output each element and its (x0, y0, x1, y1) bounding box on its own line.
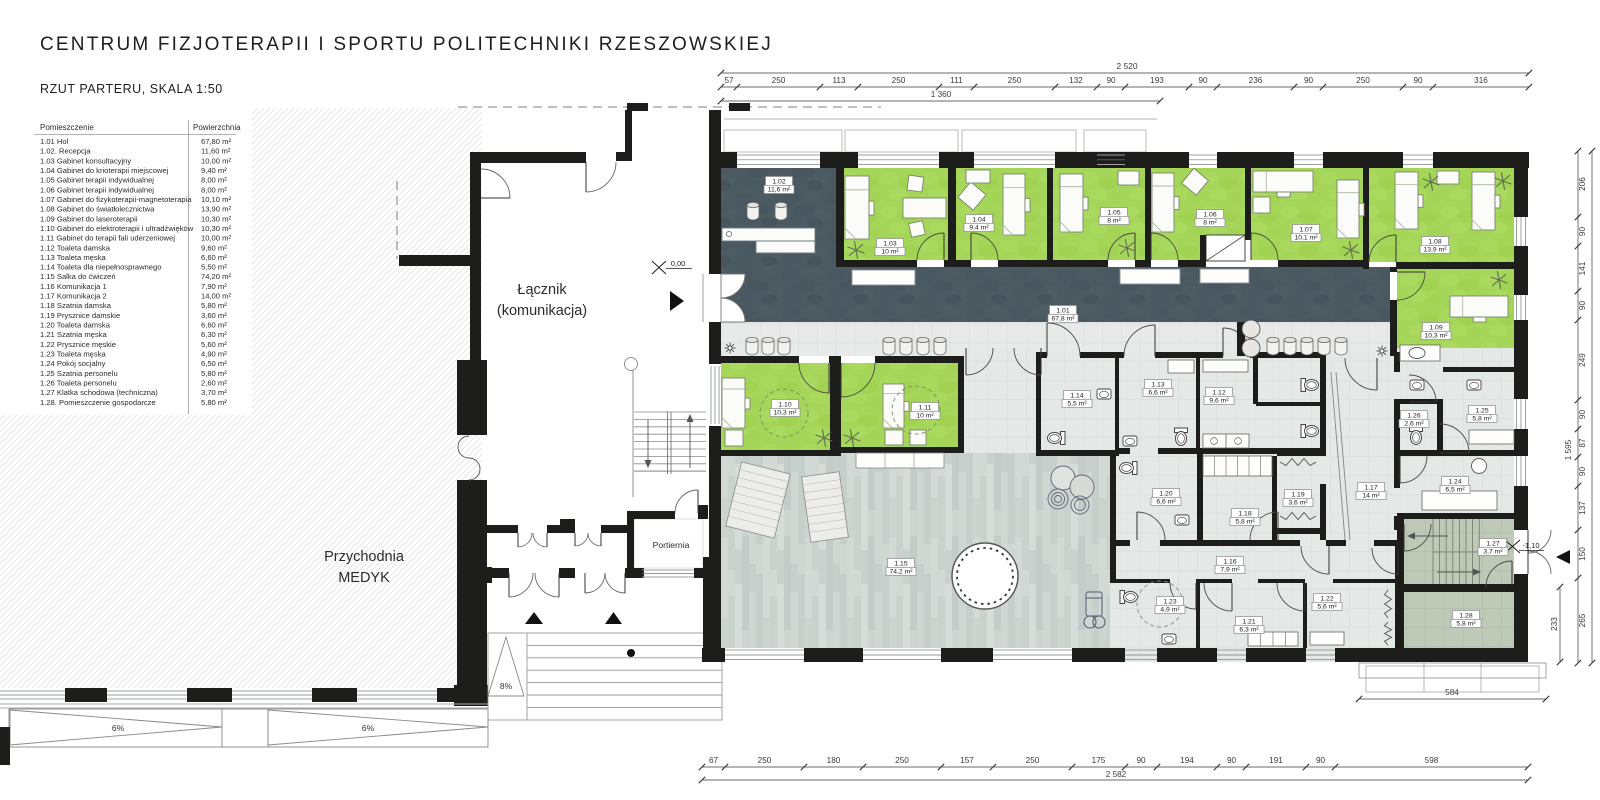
svg-text:7,90 m²: 7,90 m² (201, 282, 227, 291)
svg-text:90: 90 (1198, 76, 1208, 85)
svg-text:1.19 Prysznice damskie: 1.19 Prysznice damskie (40, 311, 120, 320)
svg-text:1.12: 1.12 (1212, 390, 1225, 397)
svg-text:5,8 m²: 5,8 m² (1456, 621, 1476, 628)
svg-text:157: 157 (960, 756, 974, 765)
svg-text:1.05: 1.05 (1107, 210, 1120, 217)
svg-text:90: 90 (1578, 301, 1587, 311)
svg-text:67,8 m²: 67,8 m² (1051, 316, 1075, 323)
svg-text:1.23 Toaleta męska: 1.23 Toaleta męska (40, 350, 106, 359)
svg-text:10,10 m²: 10,10 m² (201, 195, 231, 204)
svg-text:Pomieszczenie: Pomieszczenie (40, 123, 94, 132)
svg-text:1.27 Klatka schodowa (technicz: 1.27 Klatka schodowa (techniczna) (40, 388, 158, 397)
svg-text:265: 265 (1578, 613, 1587, 627)
svg-text:1.25 Szatnia personelu: 1.25 Szatnia personelu (40, 369, 118, 378)
svg-text:MEDYK: MEDYK (338, 570, 390, 586)
svg-text:1.15: 1.15 (894, 561, 907, 568)
svg-text:10,30 m²: 10,30 m² (201, 224, 231, 233)
svg-text:6,6 m²: 6,6 m² (1156, 499, 1176, 506)
svg-text:1.13 Toaleta męska: 1.13 Toaleta męska (40, 253, 106, 262)
svg-text:6,60 m²: 6,60 m² (201, 321, 227, 330)
svg-text:1 360: 1 360 (931, 90, 952, 99)
svg-text:3,60 m²: 3,60 m² (201, 311, 227, 320)
svg-text:10,30 m²: 10,30 m² (201, 214, 231, 223)
svg-text:5,80 m²: 5,80 m² (201, 301, 227, 310)
svg-text:11,60 m²: 11,60 m² (201, 147, 231, 156)
svg-text:9,40 m²: 9,40 m² (201, 166, 227, 175)
svg-text:90: 90 (1316, 756, 1326, 765)
svg-text:316: 316 (1474, 76, 1488, 85)
svg-text:1.10: 1.10 (778, 402, 791, 409)
svg-text:10,1 m²: 10,1 m² (1294, 235, 1318, 242)
svg-text:10 m²: 10 m² (881, 249, 899, 256)
svg-text:13,9 m²: 13,9 m² (1423, 247, 1447, 254)
svg-text:6%: 6% (362, 723, 375, 733)
svg-text:5,50 m²: 5,50 m² (201, 263, 227, 272)
svg-text:1.07 Gabinet do fizykoterapii-: 1.07 Gabinet do fizykoterapii-magnetoter… (40, 195, 192, 204)
svg-text:67: 67 (709, 756, 719, 765)
svg-text:1.26 Toaleta personelu: 1.26 Toaleta personelu (40, 379, 117, 388)
svg-text:10,3 m²: 10,3 m² (773, 410, 797, 417)
svg-text:3,70 m²: 3,70 m² (201, 388, 227, 397)
svg-text:5,8 m²: 5,8 m² (1235, 519, 1255, 526)
svg-text:5,80 m²: 5,80 m² (201, 369, 227, 378)
svg-text:1.05 Gabinet terapii indywidua: 1.05 Gabinet terapii indywidualnej (40, 176, 154, 185)
svg-text:1.11: 1.11 (919, 405, 932, 412)
svg-text:14,00 m²: 14,00 m² (201, 292, 231, 301)
svg-text:1.17 Komunikacja 2: 1.17 Komunikacja 2 (40, 292, 107, 301)
svg-text:8 m²: 8 m² (1203, 220, 1217, 227)
svg-text:1.01: 1.01 (1056, 308, 1069, 315)
svg-text:1.16 Komunikacja 1: 1.16 Komunikacja 1 (40, 282, 107, 291)
svg-text:1.16: 1.16 (1223, 559, 1236, 566)
svg-text:8,00 m²: 8,00 m² (201, 176, 227, 185)
svg-text:1.08 Gabinet do światłolecznic: 1.08 Gabinet do światłolecznictwa (40, 205, 155, 214)
svg-text:1.01 Hol: 1.01 Hol (40, 137, 69, 146)
svg-text:5,80 m²: 5,80 m² (201, 398, 227, 407)
svg-text:250: 250 (892, 76, 906, 85)
svg-text:1.22 Prysznice męskie: 1.22 Prysznice męskie (40, 340, 116, 349)
svg-text:141: 141 (1578, 261, 1587, 275)
svg-text:250: 250 (895, 756, 909, 765)
svg-text:250: 250 (1008, 76, 1022, 85)
svg-text:1.02: 1.02 (772, 179, 785, 186)
svg-text:1.15 Salka do ćwiczeń: 1.15 Salka do ćwiczeń (40, 272, 116, 281)
svg-text:4,9 m²: 4,9 m² (1160, 607, 1180, 614)
svg-text:1.17: 1.17 (1364, 485, 1377, 492)
svg-text:6,60 m²: 6,60 m² (201, 253, 227, 262)
svg-text:1.09 Gabinet do laseroterapii: 1.09 Gabinet do laseroterapii (40, 214, 138, 223)
svg-text:2,6 m²: 2,6 m² (1404, 421, 1424, 428)
svg-text:10,3 m²: 10,3 m² (1424, 333, 1448, 340)
svg-text:1.23: 1.23 (1163, 599, 1176, 606)
svg-text:6,5 m²: 6,5 m² (1445, 487, 1465, 494)
svg-text:14 m²: 14 m² (1362, 493, 1380, 500)
svg-text:1.28. Pomieszczenie gospodarcz: 1.28. Pomieszczenie gospodarcze (40, 398, 156, 407)
svg-text:9,4 m²: 9,4 m² (969, 225, 989, 232)
svg-text:1.10 Gabinet do elektroterapii: 1.10 Gabinet do elektroterapii i ultradź… (40, 224, 194, 233)
svg-text:194: 194 (1180, 756, 1194, 765)
svg-text:191: 191 (1269, 756, 1283, 765)
svg-text:10,00 m²: 10,00 m² (201, 234, 231, 243)
svg-text:1 595: 1 595 (1564, 439, 1573, 460)
svg-text:598: 598 (1425, 756, 1439, 765)
svg-text:3,6 m²: 3,6 m² (1288, 500, 1308, 507)
svg-text:175: 175 (1092, 756, 1106, 765)
svg-text:10,00 m²: 10,00 m² (201, 156, 231, 165)
svg-text:1.12 Toaleta damska: 1.12 Toaleta damska (40, 243, 111, 252)
svg-text:7,9 m²: 7,9 m² (1220, 567, 1240, 574)
svg-text:1.02. Recepcja: 1.02. Recepcja (40, 147, 91, 156)
svg-text:1.13: 1.13 (1151, 382, 1164, 389)
svg-text:2,60 m²: 2,60 m² (201, 379, 227, 388)
svg-text:(komunikacja): (komunikacja) (497, 303, 587, 319)
svg-text:8%: 8% (500, 681, 513, 691)
svg-text:87: 87 (1578, 438, 1587, 448)
svg-text:1.19: 1.19 (1291, 492, 1304, 499)
svg-text:90: 90 (1227, 756, 1237, 765)
svg-text:206: 206 (1578, 177, 1587, 191)
svg-text:1.14 Toaleta dla niepełnospraw: 1.14 Toaleta dla niepełnosprawnego (40, 263, 161, 272)
svg-text:250: 250 (772, 76, 786, 85)
svg-text:1.27: 1.27 (1486, 541, 1499, 548)
svg-text:6,6 m²: 6,6 m² (1148, 390, 1168, 397)
svg-text:90: 90 (1578, 410, 1587, 420)
svg-text:Powierzchnia: Powierzchnia (193, 123, 241, 132)
svg-text:Przychodnia: Przychodnia (324, 549, 405, 565)
svg-text:0,00: 0,00 (671, 259, 686, 268)
svg-text:Portiernia: Portiernia (653, 540, 690, 550)
svg-text:9,6 m²: 9,6 m² (1209, 398, 1229, 405)
svg-text:1.24 Pokój socjalny: 1.24 Pokój socjalny (40, 359, 106, 368)
svg-text:-1,10: -1,10 (1522, 541, 1539, 550)
svg-text:236: 236 (1249, 76, 1263, 85)
svg-text:6%: 6% (112, 723, 125, 733)
svg-text:6,30 m²: 6,30 m² (201, 330, 227, 339)
svg-text:250: 250 (758, 756, 772, 765)
svg-text:74,20 m²: 74,20 m² (201, 272, 231, 281)
svg-text:113: 113 (832, 76, 845, 85)
svg-text:2 582: 2 582 (1106, 770, 1127, 779)
svg-text:6,3 m²: 6,3 m² (1239, 627, 1259, 634)
svg-text:249: 249 (1578, 353, 1587, 367)
svg-text:1.09: 1.09 (1429, 325, 1442, 332)
svg-text:5,6 m²: 5,6 m² (1317, 604, 1337, 611)
svg-text:137: 137 (1578, 501, 1587, 515)
svg-text:1.18: 1.18 (1238, 511, 1251, 518)
svg-text:250: 250 (1026, 756, 1040, 765)
svg-text:150: 150 (1578, 547, 1587, 561)
svg-text:5,60 m²: 5,60 m² (201, 340, 227, 349)
svg-text:RZUT PARTERU, SKALA 1:50: RZUT PARTERU, SKALA 1:50 (40, 82, 223, 96)
svg-text:1.21 Szatnia męska: 1.21 Szatnia męska (40, 330, 107, 339)
svg-text:13,90 m²: 13,90 m² (201, 205, 231, 214)
svg-text:10 m²: 10 m² (916, 413, 934, 420)
svg-text:90: 90 (1578, 227, 1587, 237)
svg-text:90: 90 (1578, 467, 1587, 477)
svg-text:1.21: 1.21 (1242, 619, 1255, 626)
svg-text:1.25: 1.25 (1475, 408, 1488, 415)
svg-text:Łącznik: Łącznik (517, 282, 567, 298)
svg-text:1.06: 1.06 (1203, 212, 1216, 219)
svg-text:8,00 m²: 8,00 m² (201, 185, 227, 194)
svg-text:193: 193 (1150, 76, 1164, 85)
svg-text:11,6 m²: 11,6 m² (768, 187, 791, 194)
svg-text:1.04 Gabinet do krioterapii mi: 1.04 Gabinet do krioterapii miejscowej (40, 166, 169, 175)
svg-text:1.07: 1.07 (1299, 227, 1312, 234)
svg-text:1.11 Gabinet do terapii fali u: 1.11 Gabinet do terapii fali uderzeniowe… (40, 234, 175, 243)
svg-text:180: 180 (827, 756, 841, 765)
svg-text:1.24: 1.24 (1448, 479, 1461, 486)
svg-text:1.22: 1.22 (1320, 596, 1333, 603)
svg-text:1.20: 1.20 (1159, 491, 1172, 498)
svg-text:5,8 m²: 5,8 m² (1472, 416, 1492, 423)
svg-text:1.20 Toaleta damska: 1.20 Toaleta damska (40, 321, 111, 330)
svg-text:90: 90 (1304, 76, 1314, 85)
svg-text:90: 90 (1106, 76, 1116, 85)
svg-text:1.08: 1.08 (1428, 239, 1441, 246)
svg-text:90: 90 (1136, 756, 1146, 765)
svg-text:1.04: 1.04 (972, 217, 985, 224)
svg-text:584: 584 (1445, 688, 1459, 697)
svg-text:1.26: 1.26 (1407, 413, 1420, 420)
svg-text:3,7 m²: 3,7 m² (1483, 549, 1503, 556)
svg-text:233: 233 (1550, 617, 1559, 631)
svg-text:4,90 m²: 4,90 m² (201, 350, 227, 359)
svg-text:67,80 m²: 67,80 m² (201, 137, 231, 146)
svg-text:1.14: 1.14 (1070, 393, 1083, 400)
svg-text:5,5 m²: 5,5 m² (1067, 401, 1087, 408)
svg-text:132: 132 (1069, 76, 1083, 85)
svg-text:2 520: 2 520 (1116, 61, 1138, 71)
svg-text:8 m²: 8 m² (1107, 218, 1121, 225)
svg-text:9,60 m²: 9,60 m² (201, 243, 227, 252)
svg-text:111: 111 (950, 76, 963, 85)
svg-text:1.28: 1.28 (1459, 613, 1472, 620)
svg-text:57: 57 (724, 76, 734, 85)
svg-text:1.03 Gabinet konsultacyjny: 1.03 Gabinet konsultacyjny (40, 156, 131, 165)
svg-text:CENTRUM FIZJOTERAPII I SPORTU: CENTRUM FIZJOTERAPII I SPORTU POLITECHNI… (40, 34, 773, 55)
svg-text:1.18 Szatnia damska: 1.18 Szatnia damska (40, 301, 112, 310)
svg-text:90: 90 (1413, 76, 1423, 85)
svg-text:74,2 m²: 74,2 m² (889, 569, 913, 576)
svg-text:1.06 Gabinet terapii indywidua: 1.06 Gabinet terapii indywidualnej (40, 185, 154, 194)
svg-text:6,50 m²: 6,50 m² (201, 359, 227, 368)
svg-text:250: 250 (1356, 76, 1370, 85)
svg-text:1.03: 1.03 (883, 241, 896, 248)
